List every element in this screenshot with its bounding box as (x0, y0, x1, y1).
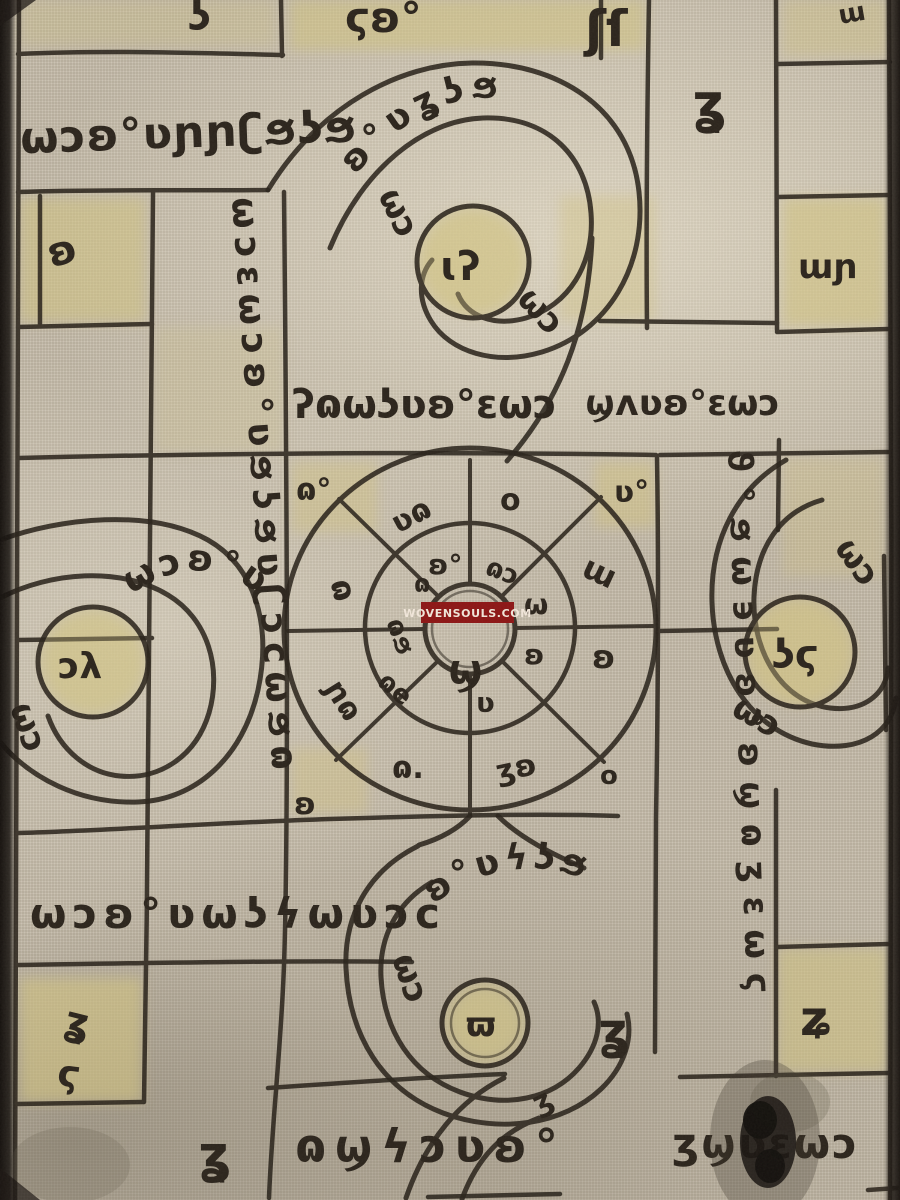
fabric-grain-overlay (0, 0, 900, 1200)
textile-photo-svg: ωɔʚ°ʋɲɲʗϧʖϧ ʚ ʓ ɯɲ ωɔɛωɔʚ°ʋϧʖϧʋʗɔcωϧɷ ϑ°… (0, 0, 900, 1200)
textile-photograph: ωɔʚ°ʋɲɲʗϧʖϧ ʚ ʓ ɯɲ ωɔɛωɔʚ°ʋϧʖϧʋʗɔcωϧɷ ϑ°… (0, 0, 900, 1200)
